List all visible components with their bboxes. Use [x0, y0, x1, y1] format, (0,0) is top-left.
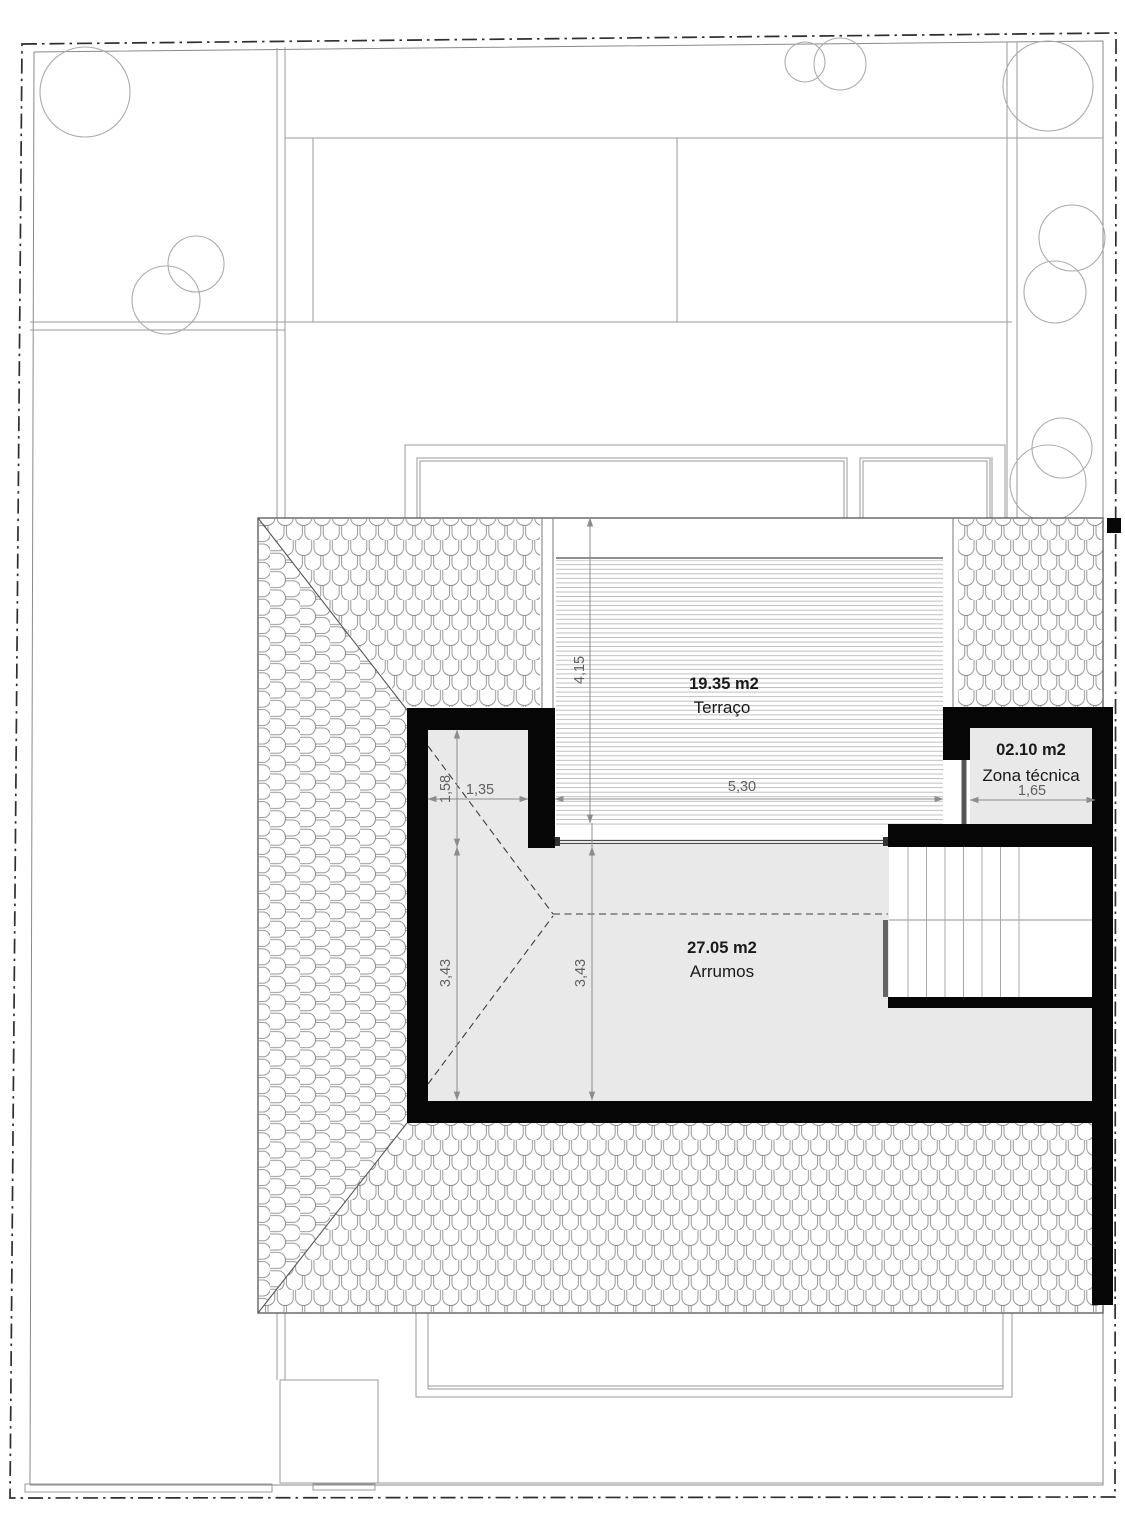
dim-label-zona-width: 1,65: [1018, 783, 1046, 799]
staircase: [889, 847, 1092, 997]
trees: [40, 38, 1105, 521]
dim-label-arrumos-depth-left: 3,43: [438, 959, 454, 987]
lower-floor-parapet-left: [417, 458, 847, 518]
dim-label-terrace-depth: 4,15: [572, 656, 588, 684]
floor-plan-page: 5,30 1,35 1,65 4,15 1,58 3,43 3,43 19.35…: [0, 0, 1125, 1526]
tree-icon: [814, 38, 866, 90]
wall-above-stairs: [888, 824, 1097, 847]
arrumos-area-label: 27.05 m2: [687, 939, 757, 957]
yard-box-bottom: [280, 1380, 378, 1483]
stair-handrail: [883, 920, 888, 997]
dim-label-terrace-width: 5,30: [728, 779, 756, 795]
wall-right: [1092, 708, 1113, 1305]
dim-label-alcove-depth: 1,58: [438, 775, 454, 803]
fence-left-lower: [277, 1313, 285, 1380]
zona-tecnica-name-label: Zona técnica: [982, 766, 1080, 785]
door-jamb-right: [883, 837, 888, 846]
zona-tecnica-door: [962, 760, 967, 824]
lower-floor-parapet-bottom: [428, 1313, 1003, 1389]
wall-below-stairs: [888, 997, 1092, 1008]
stairwell: [889, 847, 1092, 997]
wall-corner-block: [1107, 518, 1121, 533]
roof-tiles-right: [958, 518, 1103, 707]
wall-pier-terrace: [528, 708, 555, 848]
lower-floor-outline-top: [405, 445, 1005, 518]
fence-left-upper: [277, 47, 285, 518]
tree-icon: [132, 266, 200, 334]
lower-floor-outline-bottom: [416, 1313, 1012, 1397]
tree-icon: [40, 47, 130, 137]
wall-left: [407, 708, 428, 1123]
dim-label-alcove-width: 1,35: [466, 782, 494, 798]
dim-label-arrumos-depth-mid: 3,43: [573, 959, 589, 987]
wall-bottom: [407, 1101, 1113, 1123]
lower-floor-parapet-right: [860, 458, 990, 518]
wall-zona-left: [943, 707, 970, 760]
door-jamb-left: [555, 837, 560, 846]
terraco-name-label: Terraço: [694, 698, 751, 717]
tree-icon: [1024, 261, 1086, 323]
arrumos-name-label: Arrumos: [690, 962, 754, 981]
yard-line-mid: [30, 322, 1012, 330]
floor-plan-drawing: 5,30 1,35 1,65 4,15 1,58 3,43 3,43 19.35…: [0, 0, 1125, 1526]
yard-rectangle: [313, 138, 677, 322]
tree-icon: [1010, 445, 1086, 521]
terraco-area-label: 19.35 m2: [689, 675, 759, 693]
zona-tecnica-area-label: 02.10 m2: [996, 741, 1066, 759]
